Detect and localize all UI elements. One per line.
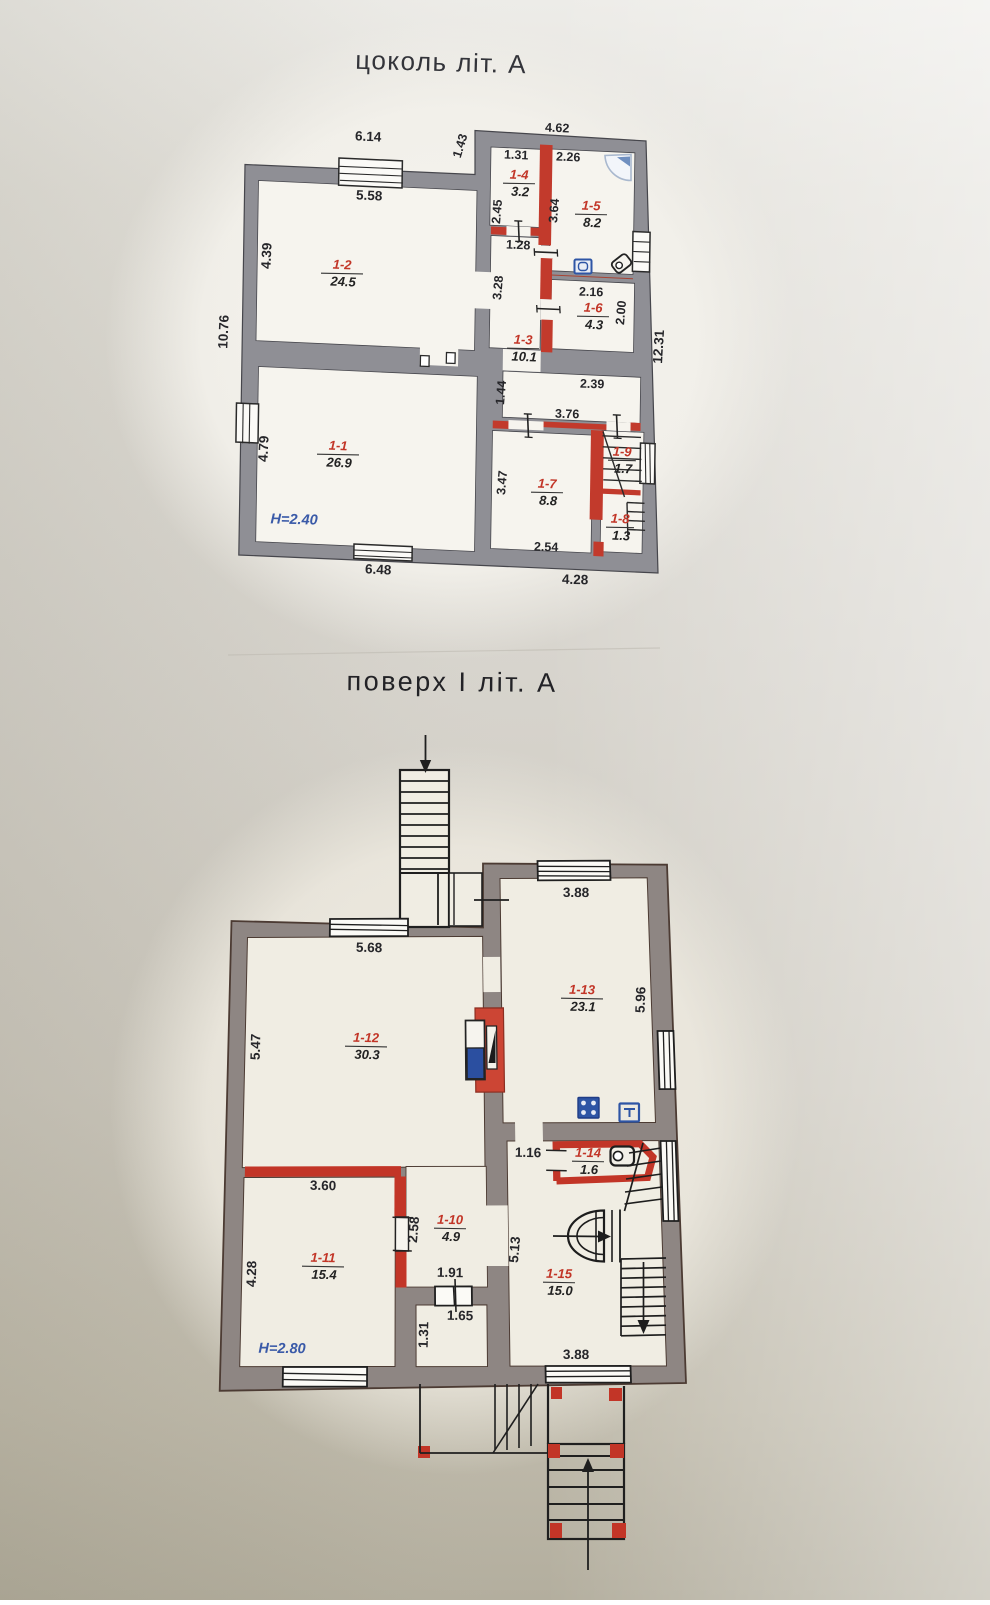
- svg-text:3.76: 3.76: [555, 407, 580, 422]
- svg-text:4.79: 4.79: [255, 435, 271, 462]
- svg-text:1.31: 1.31: [416, 1321, 432, 1348]
- svg-text:1-2: 1-2: [333, 257, 353, 273]
- svg-text:10.76: 10.76: [215, 314, 231, 349]
- svg-text:1-4: 1-4: [510, 167, 530, 183]
- svg-text:8.8: 8.8: [539, 493, 558, 509]
- svg-text:2.54: 2.54: [534, 540, 559, 555]
- svg-text:2.58: 2.58: [405, 1215, 422, 1243]
- svg-text:2.00: 2.00: [613, 300, 629, 326]
- svg-text:1.7: 1.7: [614, 461, 633, 477]
- svg-text:1.6: 1.6: [580, 1162, 599, 1177]
- svg-text:1.3: 1.3: [612, 528, 631, 544]
- svg-text:1-13: 1-13: [569, 982, 596, 997]
- svg-text:3.2: 3.2: [511, 184, 530, 200]
- svg-text:2.16: 2.16: [579, 285, 604, 300]
- svg-text:15.4: 15.4: [311, 1267, 337, 1282]
- svg-text:30.3: 30.3: [354, 1047, 380, 1062]
- svg-text:1-14: 1-14: [575, 1145, 602, 1160]
- svg-text:4.3: 4.3: [584, 317, 604, 333]
- svg-text:15.0: 15.0: [547, 1283, 573, 1298]
- svg-text:1-3: 1-3: [514, 332, 534, 348]
- svg-text:5.47: 5.47: [248, 1034, 264, 1061]
- svg-text:1.65: 1.65: [447, 1308, 474, 1323]
- svg-text:1-10: 1-10: [437, 1212, 464, 1227]
- svg-text:3.47: 3.47: [494, 470, 510, 496]
- svg-text:10.1: 10.1: [511, 349, 537, 365]
- svg-text:1.91: 1.91: [437, 1265, 464, 1280]
- svg-text:1-5: 1-5: [582, 198, 602, 214]
- svg-text:1-7: 1-7: [538, 476, 558, 492]
- svg-text:26.9: 26.9: [325, 455, 353, 471]
- svg-text:3.28: 3.28: [490, 275, 506, 301]
- svg-text:1-6: 1-6: [584, 300, 604, 316]
- svg-text:H=2.80: H=2.80: [258, 1341, 305, 1357]
- svg-text:12.31: 12.31: [650, 329, 667, 364]
- svg-text:1-12: 1-12: [353, 1030, 380, 1045]
- svg-text:4.9: 4.9: [441, 1229, 461, 1244]
- svg-text:3.64: 3.64: [546, 198, 562, 224]
- svg-text:H=2.40: H=2.40: [270, 511, 318, 528]
- svg-text:5.13: 5.13: [506, 1235, 523, 1263]
- svg-text:цоколь літ. А: цоколь літ. А: [355, 45, 528, 79]
- svg-text:1.31: 1.31: [504, 147, 529, 162]
- svg-text:1.28: 1.28: [506, 237, 531, 252]
- svg-text:5.58: 5.58: [356, 187, 383, 203]
- svg-text:1.16: 1.16: [515, 1145, 542, 1160]
- svg-text:4.28: 4.28: [562, 572, 589, 588]
- svg-text:1-1: 1-1: [329, 438, 348, 454]
- svg-text:2.39: 2.39: [580, 377, 605, 392]
- svg-text:6.48: 6.48: [365, 561, 392, 577]
- svg-text:1-15: 1-15: [546, 1266, 573, 1281]
- svg-text:2.45: 2.45: [489, 199, 505, 225]
- svg-text:3.60: 3.60: [310, 1178, 337, 1193]
- svg-text:1.44: 1.44: [493, 380, 509, 406]
- svg-text:5.68: 5.68: [356, 940, 383, 955]
- svg-text:1-11: 1-11: [310, 1250, 335, 1265]
- svg-text:поверх І літ. А: поверх І літ. А: [346, 666, 557, 698]
- svg-text:5.96: 5.96: [633, 986, 649, 1013]
- svg-text:2.26: 2.26: [556, 149, 581, 164]
- svg-text:4.28: 4.28: [244, 1260, 260, 1287]
- svg-text:1-9: 1-9: [613, 444, 633, 460]
- svg-text:23.1: 23.1: [569, 999, 596, 1014]
- svg-text:1-8: 1-8: [611, 511, 631, 527]
- svg-text:3.88: 3.88: [563, 885, 590, 900]
- svg-text:3.88: 3.88: [563, 1347, 590, 1362]
- svg-text:6.14: 6.14: [355, 128, 382, 144]
- svg-text:4.62: 4.62: [545, 120, 570, 135]
- svg-text:4.39: 4.39: [258, 242, 274, 269]
- svg-text:24.5: 24.5: [329, 274, 357, 290]
- svg-text:8.2: 8.2: [583, 215, 602, 231]
